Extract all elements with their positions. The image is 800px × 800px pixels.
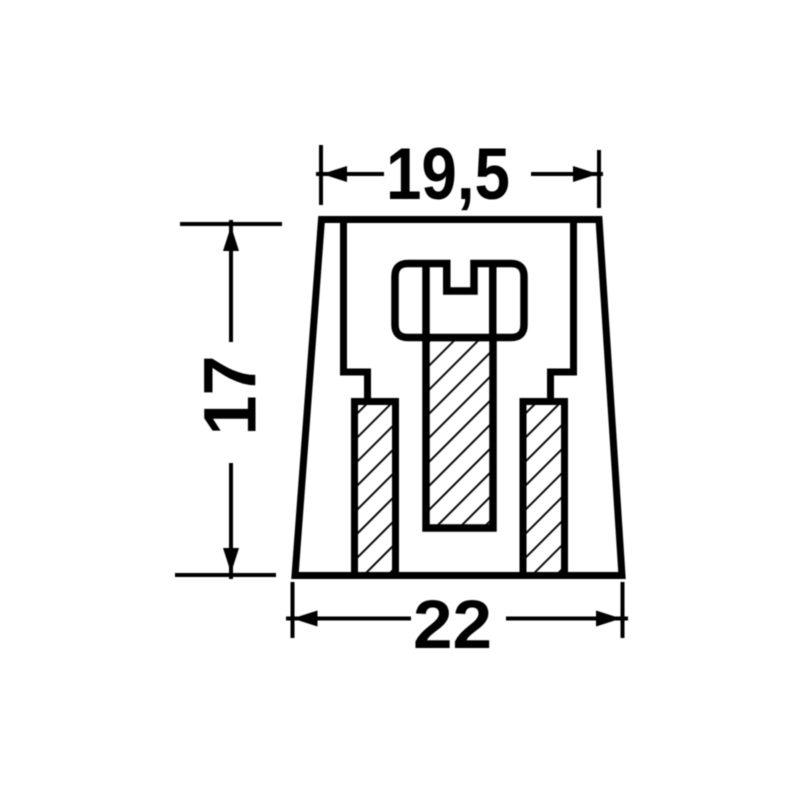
svg-text:22: 22 bbox=[413, 586, 492, 663]
svg-text:19,5: 19,5 bbox=[386, 134, 510, 215]
svg-text:17: 17 bbox=[189, 356, 272, 436]
